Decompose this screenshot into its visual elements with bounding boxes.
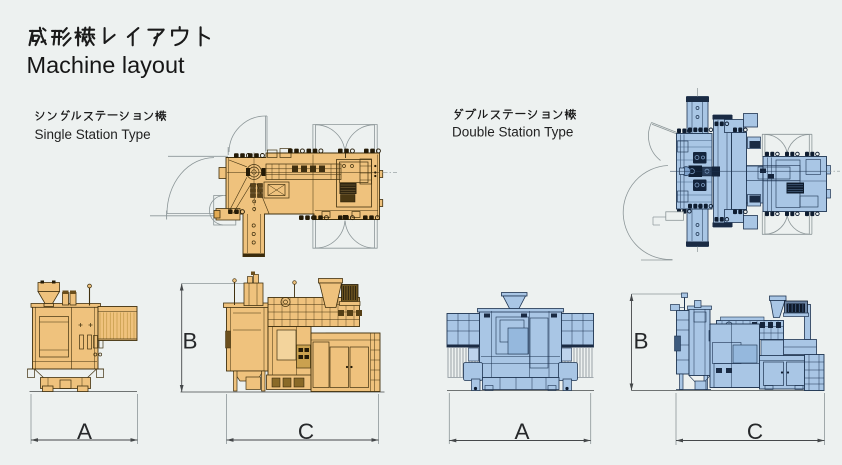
svg-text:B: B [182, 329, 197, 354]
svg-text:A: A [77, 419, 92, 444]
svg-text:A: A [514, 419, 529, 444]
svg-text:Machine layout: Machine layout [27, 52, 186, 78]
svg-text:B: B [633, 329, 648, 354]
svg-text:C: C [747, 419, 763, 444]
svg-text:Double Station Type: Double Station Type [452, 125, 573, 140]
svg-text:Single Station Type: Single Station Type [35, 127, 151, 142]
svg-text:C: C [298, 419, 314, 444]
